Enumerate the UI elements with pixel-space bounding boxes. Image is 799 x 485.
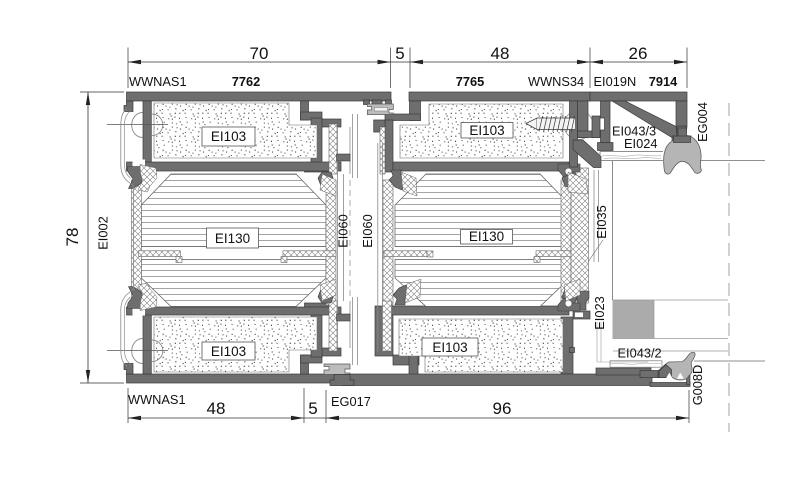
- svg-text:G008D: G008D: [690, 365, 705, 406]
- svg-text:EI130: EI130: [215, 231, 250, 246]
- svg-text:EI043/2: EI043/2: [618, 346, 662, 361]
- svg-text:EI103: EI103: [211, 344, 246, 359]
- svg-text:EI024: EI024: [624, 136, 657, 151]
- svg-text:26: 26: [629, 44, 648, 63]
- svg-text:EI019N: EI019N: [594, 74, 637, 89]
- svg-text:EI103: EI103: [432, 340, 467, 355]
- svg-text:7765: 7765: [456, 74, 484, 89]
- svg-text:EG004: EG004: [695, 102, 710, 142]
- svg-text:WWNAS1: WWNAS1: [128, 392, 186, 407]
- svg-text:EI035: EI035: [594, 205, 609, 238]
- svg-text:78: 78: [63, 228, 82, 247]
- svg-text:EI023: EI023: [592, 296, 607, 329]
- svg-text:5: 5: [395, 44, 404, 63]
- svg-text:48: 48: [491, 44, 510, 63]
- svg-text:WWNAS1: WWNAS1: [129, 74, 187, 89]
- svg-text:48: 48: [207, 399, 226, 418]
- svg-text:WWNS34: WWNS34: [528, 74, 584, 89]
- svg-text:EI002: EI002: [96, 216, 111, 249]
- svg-text:EI103: EI103: [211, 129, 246, 144]
- svg-text:70: 70: [250, 44, 269, 63]
- svg-text:7914: 7914: [649, 74, 678, 89]
- svg-text:EI130: EI130: [469, 229, 504, 244]
- svg-text:5: 5: [308, 399, 317, 418]
- svg-text:EI103: EI103: [469, 123, 504, 138]
- svg-text:7762: 7762: [232, 74, 260, 89]
- svg-text:EG017: EG017: [331, 394, 371, 409]
- svg-text:EI060: EI060: [360, 214, 375, 247]
- svg-text:96: 96: [493, 399, 512, 418]
- svg-text:EI060: EI060: [336, 214, 351, 247]
